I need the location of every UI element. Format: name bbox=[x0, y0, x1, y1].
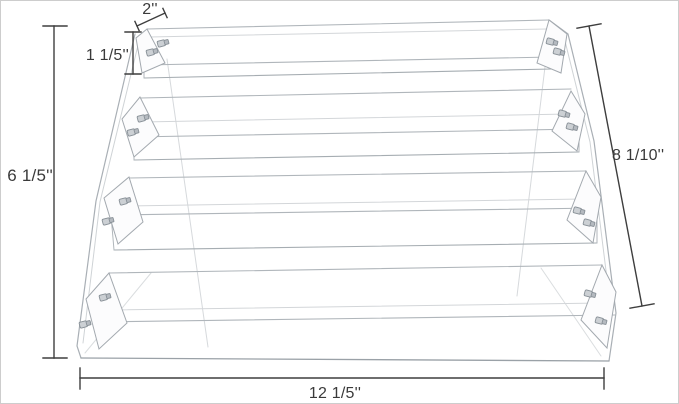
dimension-overall-height bbox=[43, 26, 67, 358]
tier-4-left-end-cap bbox=[86, 273, 127, 349]
product-dimension-diagram: 2'' 1 1/5'' 6 1/5'' 8 1/10'' 12 1/5'' bbox=[0, 0, 679, 404]
tier-2-lip-top-edge bbox=[134, 129, 579, 137]
base-bottom-edge bbox=[81, 358, 609, 361]
tier-4-lip-top-edge bbox=[95, 315, 615, 322]
tier-1-lip-top-edge bbox=[144, 57, 552, 65]
tier-3-right-end-cap bbox=[567, 171, 601, 243]
tier-1-right-end-cap bbox=[537, 20, 567, 73]
slant-depth-label: 8 1/10'' bbox=[612, 147, 664, 165]
tier-2-shelf bbox=[122, 89, 585, 160]
overall-height-label: 6 1/5'' bbox=[1, 167, 53, 186]
tier-1-shelf bbox=[136, 20, 567, 78]
tier-3-shelf bbox=[102, 171, 601, 250]
tier-3-lip-top-edge bbox=[111, 208, 597, 215]
screw bbox=[157, 39, 169, 48]
tier-1-shelf-back-line bbox=[149, 29, 547, 37]
tier-1-lip-bottom-edge bbox=[144, 69, 552, 78]
tier-2-lip-bottom-edge bbox=[134, 152, 579, 160]
tier-2-left-end-cap bbox=[122, 97, 159, 157]
tier-1-back-top-edge bbox=[147, 20, 549, 29]
tier-4-shelf-back-line bbox=[113, 303, 601, 310]
tier-2-shelf-back-line bbox=[142, 114, 569, 122]
left-panel-back-edge bbox=[167, 59, 208, 347]
tier-3-back-top-edge bbox=[129, 171, 586, 178]
shelf-depth-label: 2'' bbox=[125, 1, 175, 19]
tier-4-right-end-cap bbox=[581, 265, 616, 348]
tier-3-lip-bottom-edge bbox=[114, 243, 597, 250]
tier-3-shelf-back-line bbox=[123, 199, 584, 206]
tier-height-label: 1 1/5'' bbox=[47, 47, 129, 65]
tier-4-shelf bbox=[79, 265, 616, 349]
tier-2-back-top-edge bbox=[140, 89, 571, 98]
overall-width-label: 12 1/5'' bbox=[289, 385, 381, 403]
tier-3-left-end-cap bbox=[104, 177, 143, 244]
tier-4-back-top-edge bbox=[109, 265, 602, 273]
